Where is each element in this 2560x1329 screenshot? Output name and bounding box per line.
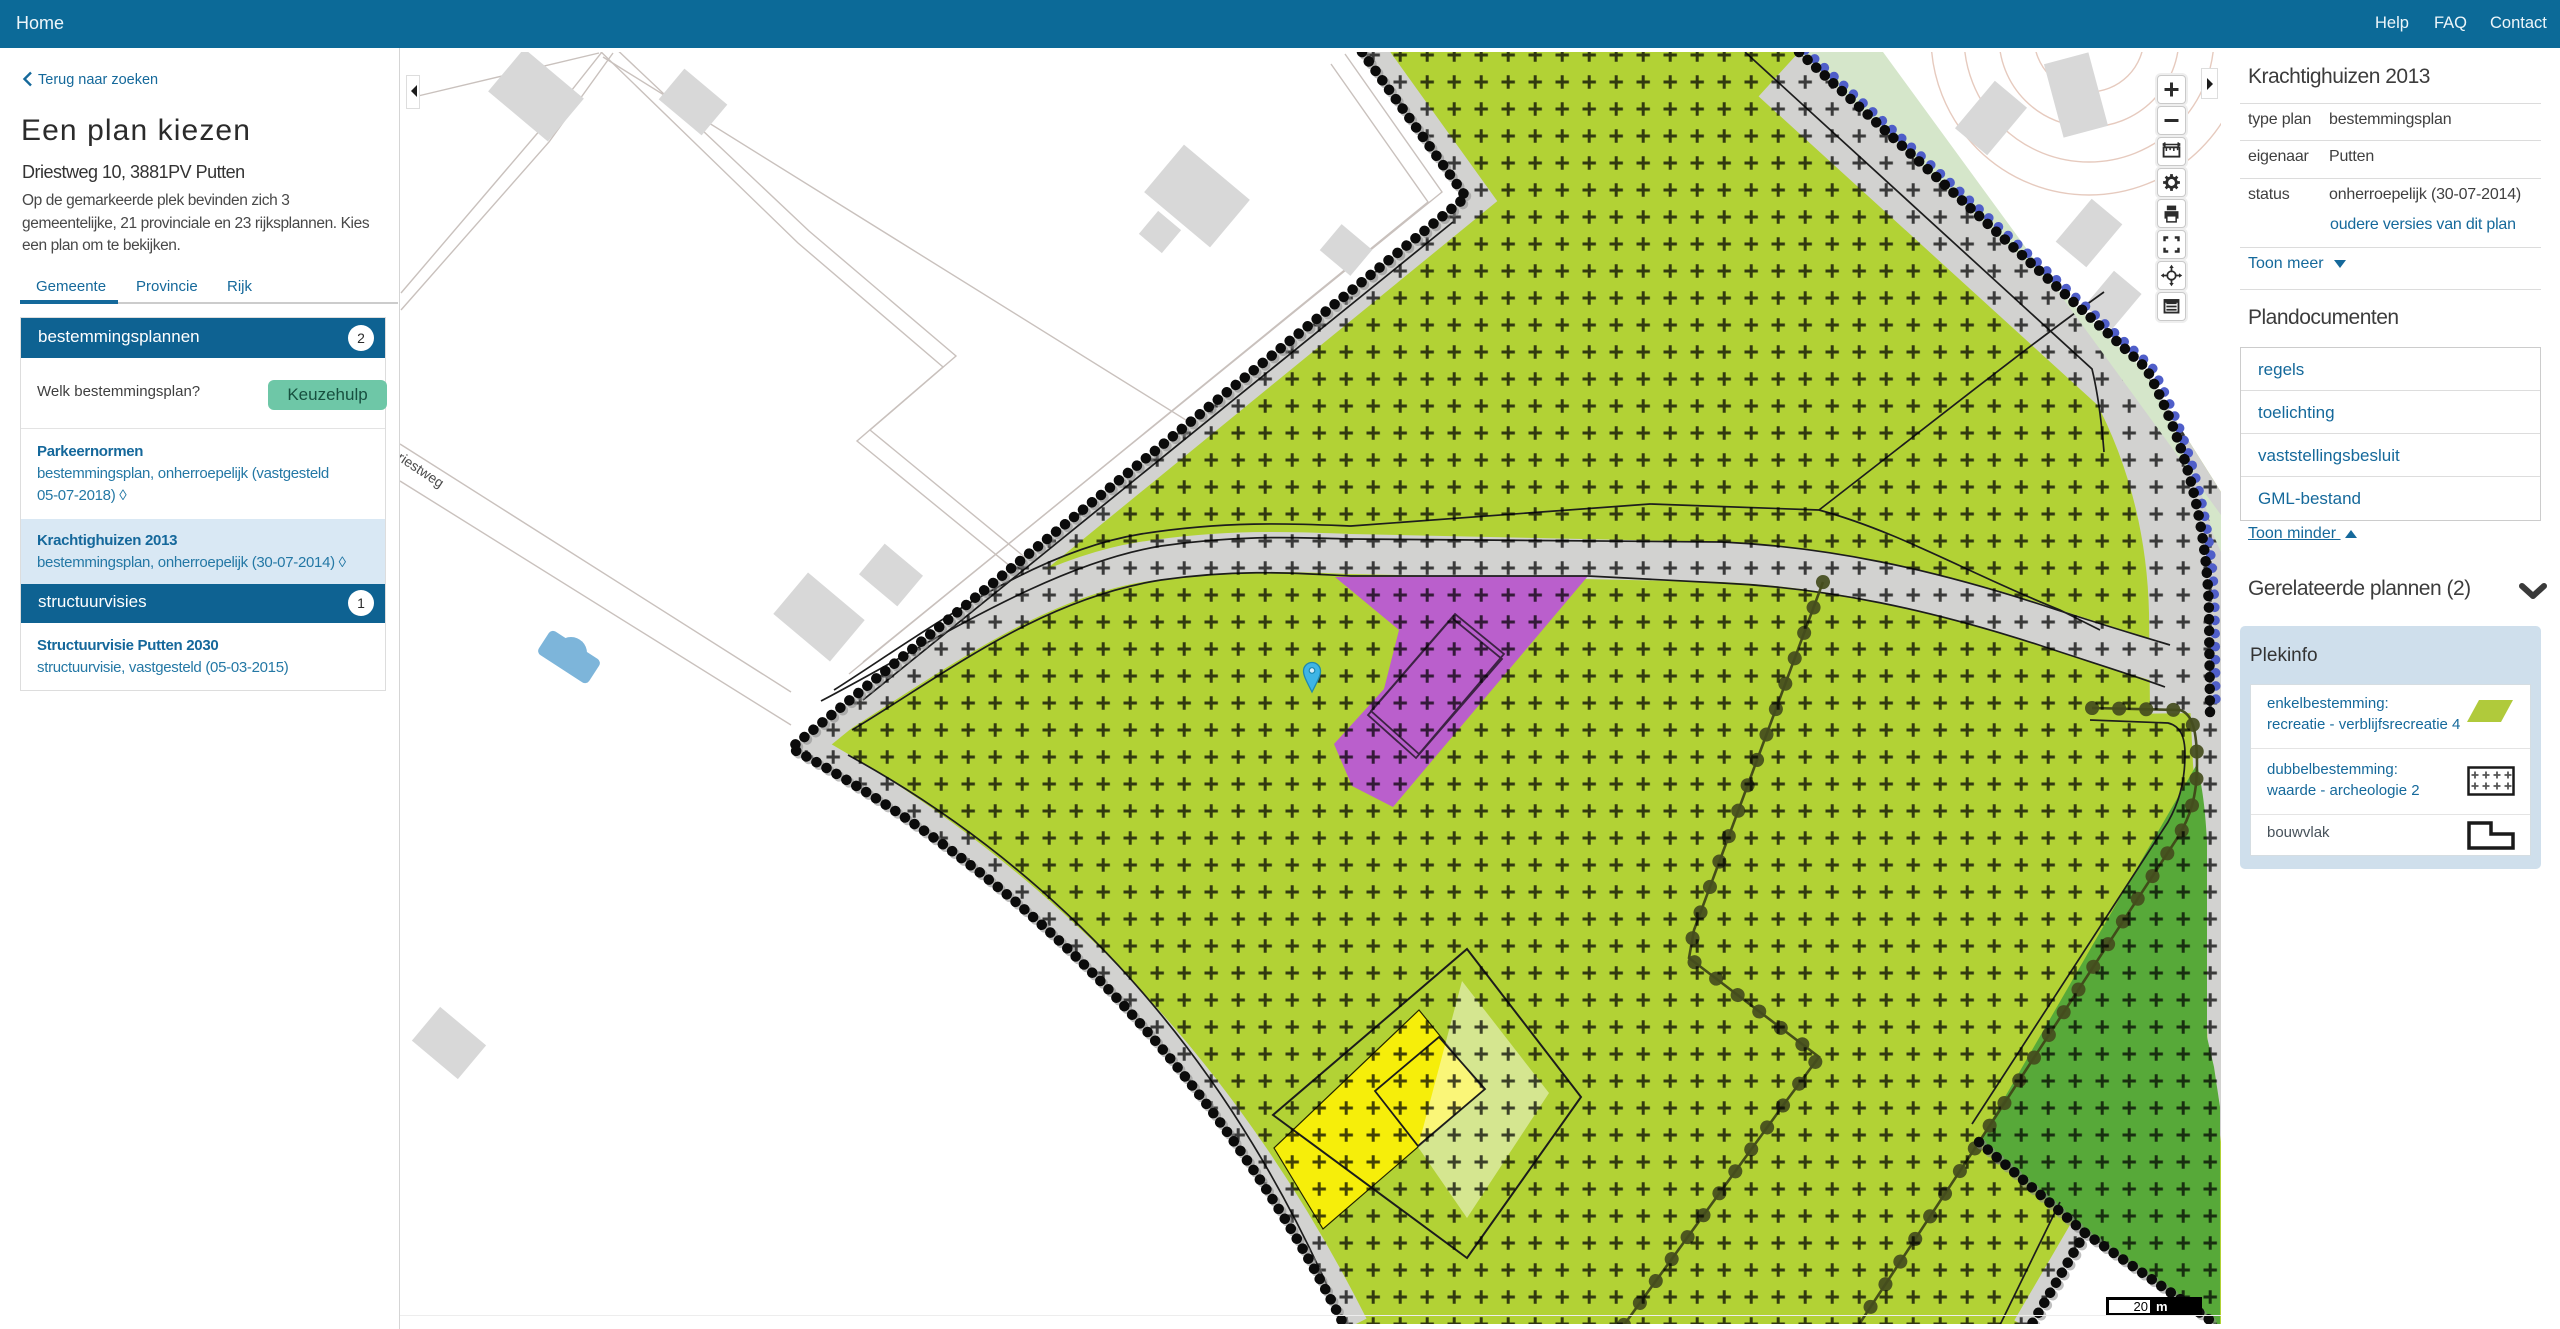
- svg-text:m: m: [2156, 1299, 2168, 1314]
- svg-text:20: 20: [2134, 1299, 2148, 1314]
